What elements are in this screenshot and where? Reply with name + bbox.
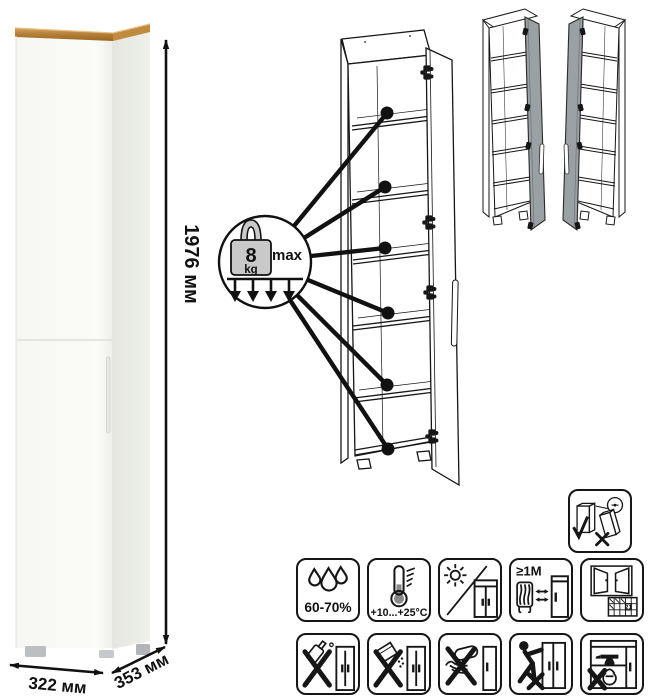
shelf-load-diagram: 8 kg max <box>205 8 470 500</box>
temperature-icon: +10...+25°C <box>367 558 431 622</box>
load-qualifier: max <box>272 247 303 264</box>
cabinet-foot <box>25 646 46 657</box>
no-wet-sponge-icon <box>438 633 502 695</box>
no-abrasives-icon <box>367 633 431 695</box>
width-dimension: 322 мм <box>10 665 103 698</box>
depth-label: 353 мм <box>111 649 172 692</box>
drop-icon <box>330 643 334 647</box>
humidity-icon: 60-70% <box>296 558 360 622</box>
wall-anchor-warning-icon <box>568 489 632 553</box>
variant-door-hinged-left <box>563 9 625 230</box>
cabinet-photo <box>15 24 150 658</box>
wall-anchor-graphic <box>570 491 630 551</box>
humidity-label: 60-70% <box>304 600 351 615</box>
cabinet-drawing <box>341 30 459 485</box>
cabinet-icon <box>542 643 565 688</box>
cabinet-icon <box>483 647 496 690</box>
cabinet-icon <box>552 576 568 617</box>
product-sheet: 1976 мм 322 мм 353 мм <box>0 0 648 700</box>
x-mark-icon <box>596 533 607 544</box>
calendar-day-label: 21 <box>625 605 631 611</box>
cabinet-side-face <box>112 31 150 649</box>
open-door <box>426 48 459 485</box>
door-handle-groove <box>107 357 111 433</box>
width-label: 322 мм <box>28 674 88 698</box>
load-unit: kg <box>244 264 257 276</box>
cabinet-icon <box>475 580 497 617</box>
max-load-badge: 8 kg max <box>219 216 311 308</box>
avoid-sunlight-icon <box>438 558 502 622</box>
foot <box>357 459 371 469</box>
calendar-icon: 21 <box>608 598 636 616</box>
variant-door-handle <box>539 144 544 174</box>
cabinet-front-face <box>16 36 112 648</box>
width-arrow <box>10 665 103 673</box>
variant-door-hinged-right <box>483 9 545 230</box>
temperature-label: +10...+25°C <box>371 607 428 619</box>
product-photo: 1976 мм 322 мм 353 мм <box>0 0 210 700</box>
cabinet-foot <box>99 650 114 658</box>
height-label: 1976 мм <box>180 224 202 304</box>
cabinet-icon <box>336 647 354 690</box>
water-drops-icon <box>309 567 347 590</box>
thermometer-icon <box>391 566 414 606</box>
heat-distance-icon: ≥1M <box>509 558 573 622</box>
cabinet-foot <box>136 644 150 655</box>
heat-distance-label: ≥1M <box>516 563 542 578</box>
foot <box>417 451 431 461</box>
height-dimension: 1976 мм <box>166 40 202 644</box>
cabinet-icon <box>407 647 425 690</box>
no-dragging-icon <box>509 633 573 695</box>
distance-arrows-icon <box>535 589 548 602</box>
radiator-icon <box>517 582 532 612</box>
sun-icon <box>444 564 466 586</box>
ventilation-icon: 21 <box>580 558 644 622</box>
door-variants <box>475 2 645 258</box>
door-handle <box>451 280 458 346</box>
no-overload-icon <box>580 633 644 695</box>
no-solvents-icon <box>296 633 360 695</box>
open-window-icon <box>591 566 632 595</box>
